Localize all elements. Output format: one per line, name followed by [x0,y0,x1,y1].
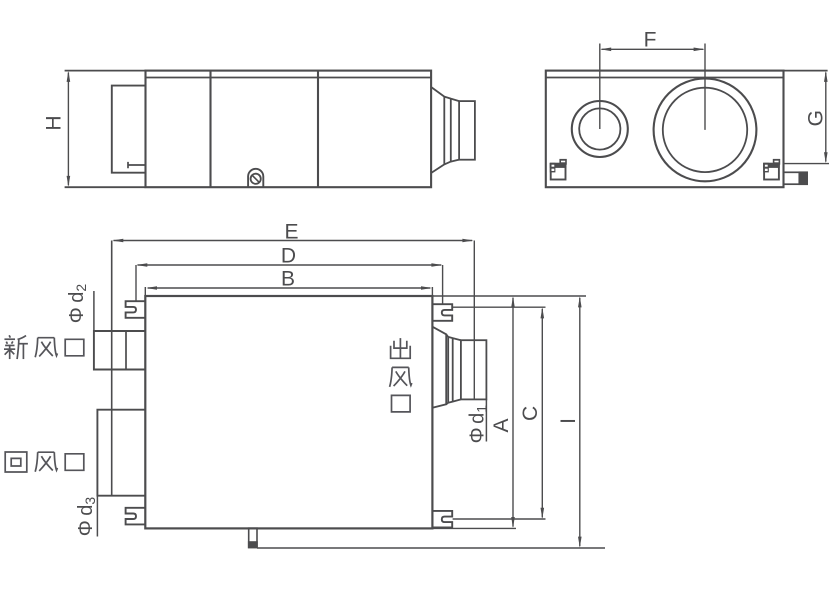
svg-text:D: D [281,244,296,267]
svg-text:H: H [43,115,66,130]
svg-text:Φd1: Φd1 [466,405,489,444]
svg-text:B: B [281,267,295,290]
svg-text:G: G [805,110,828,126]
svg-text:F: F [644,28,657,51]
svg-text:Φd2: Φd2 [66,284,89,324]
svg-text:E: E [284,221,298,244]
svg-text:I: I [557,418,580,424]
svg-text:C: C [519,406,542,421]
svg-text:Φd3: Φd3 [75,497,98,537]
svg-text:A: A [490,418,513,432]
